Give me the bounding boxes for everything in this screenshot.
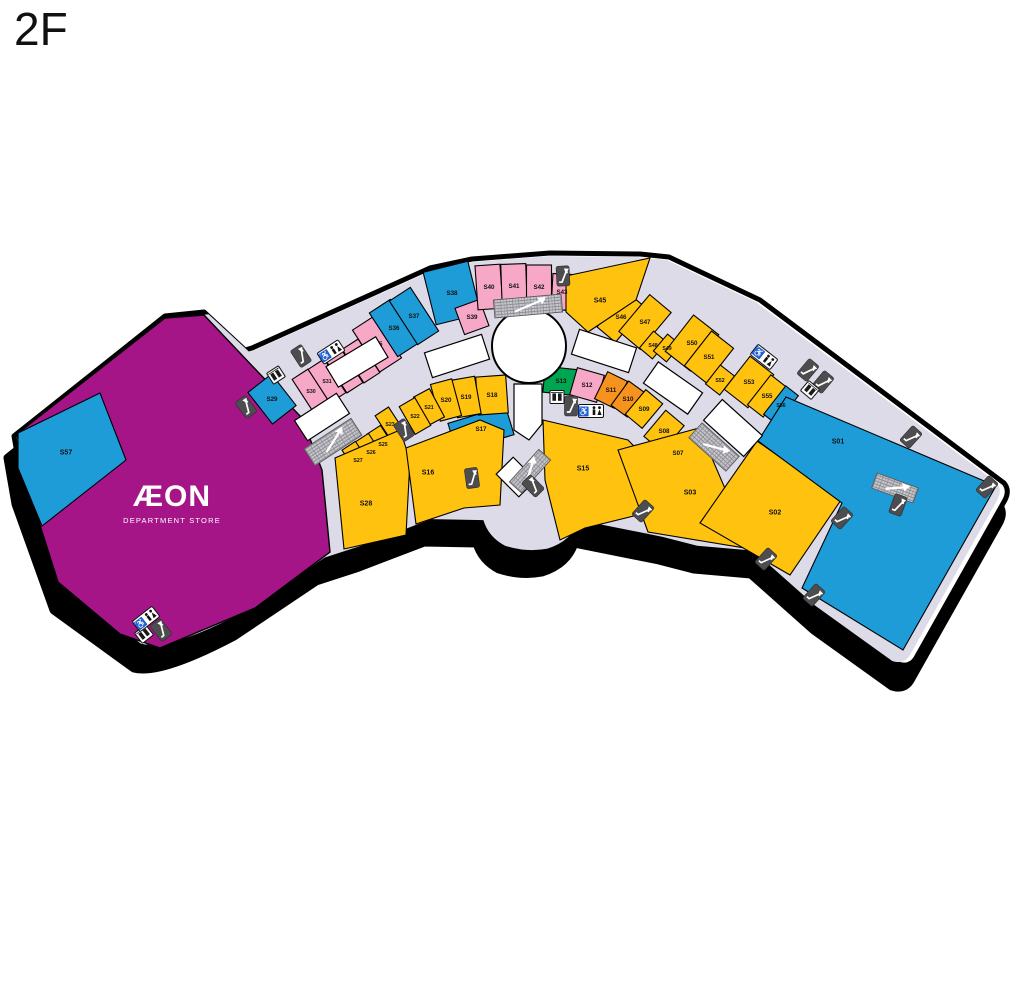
shop-label-S29: S29 — [266, 396, 278, 403]
escalator-icon — [556, 266, 570, 287]
shop-label-S02: S02 — [769, 510, 782, 517]
escalator-icon — [464, 467, 480, 489]
aeon-sublabel: DEPARTMENT STORE — [123, 516, 221, 525]
shop-label-S52: S52 — [715, 378, 724, 384]
shop-label-S39: S39 — [466, 314, 478, 321]
shop-label-S13: S13 — [555, 378, 567, 385]
shop-label-S40: S40 — [483, 284, 495, 291]
shop-label-S50: S50 — [686, 340, 698, 347]
shop-label-S16: S16 — [422, 470, 435, 477]
shop-label-S22: S22 — [410, 414, 419, 420]
shop-label-S17: S17 — [475, 426, 487, 433]
central-courtyard — [492, 309, 566, 383]
shop-label-S31: S31 — [322, 379, 331, 385]
shop-label-S30: S30 — [306, 389, 315, 395]
shop-label-S25: S25 — [378, 442, 387, 448]
shop-label-S41: S41 — [508, 283, 520, 290]
shop-label-S49: S49 — [662, 346, 671, 352]
shop-label-S23: S23 — [385, 422, 394, 428]
shop-label-S42: S42 — [533, 284, 545, 291]
shop-label-S20: S20 — [440, 397, 452, 404]
floor-plan-page: 2F S30S31S32S33S35S36S37S38S39S40S41S42S… — [0, 0, 1023, 1000]
restroom-accessible-icon: ♿ — [578, 405, 603, 418]
shop-label-S10: S10 — [622, 396, 634, 403]
mall-floor-plan-map: S30S31S32S33S35S36S37S38S39S40S41S42S43S… — [0, 0, 1023, 1000]
shop-label-S51: S51 — [703, 354, 715, 361]
shop-label-S01: S01 — [832, 439, 845, 446]
shop-label-S57: S57 — [60, 450, 73, 457]
shop-label-S56: S56 — [776, 403, 785, 409]
shop-label-S09: S09 — [638, 406, 650, 413]
shop-label-S18: S18 — [486, 392, 498, 399]
wheelchair-glyph: ♿ — [578, 405, 589, 416]
shop-label-S37: S37 — [408, 313, 420, 320]
shop-label-S48: S48 — [648, 343, 657, 349]
shop-label-S28: S28 — [360, 501, 373, 508]
shop-label-S46: S46 — [615, 314, 627, 321]
shop-label-S45: S45 — [594, 298, 607, 305]
shop-label-S47: S47 — [639, 319, 651, 326]
escalator-icon — [565, 396, 578, 416]
shop-label-S12: S12 — [581, 382, 593, 389]
shop-label-S21: S21 — [424, 405, 433, 411]
shop-label-S15: S15 — [577, 466, 590, 473]
shop-label-S53: S53 — [743, 379, 755, 386]
shop-label-S08: S08 — [658, 428, 670, 435]
shop-label-S26: S26 — [366, 450, 375, 456]
elevator-icon — [550, 391, 564, 404]
shop-label-S03: S03 — [684, 490, 697, 497]
shop-label-S11: S11 — [606, 387, 617, 394]
shop-label-S27: S27 — [353, 458, 362, 464]
shop-label-S36: S36 — [388, 325, 400, 332]
shop-label-S38: S38 — [446, 290, 458, 297]
aeon-logo-text: ÆON — [133, 480, 211, 513]
shop-label-S07: S07 — [672, 450, 684, 457]
shop-label-S19: S19 — [460, 394, 472, 401]
shop-label-S55: S55 — [761, 393, 773, 400]
